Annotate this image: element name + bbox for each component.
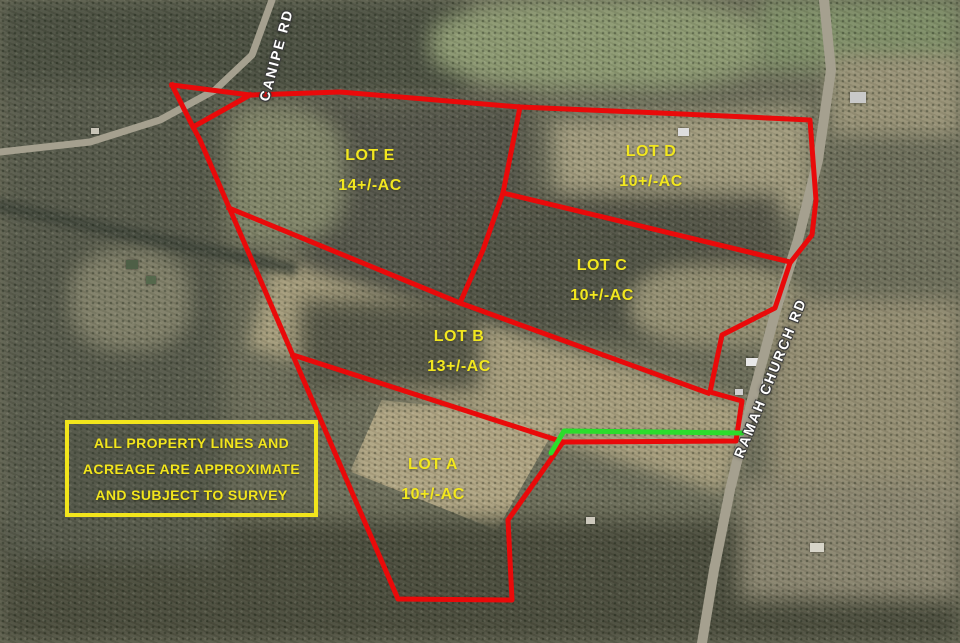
disclaimer-line-2: ACREAGE ARE APPROXIMATE — [69, 456, 314, 482]
disclaimer-line-1: ALL PROPERTY LINES AND — [69, 430, 314, 456]
aerial-map: LOT E14+/-ACLOT D10+/-ACLOT C10+/-ACLOT … — [0, 0, 960, 643]
disclaimer-line-3: AND SUBJECT TO SURVEY — [69, 482, 314, 508]
disclaimer-box: ALL PROPERTY LINES AND ACREAGE ARE APPRO… — [65, 420, 318, 517]
boundary-overlay — [0, 0, 960, 643]
